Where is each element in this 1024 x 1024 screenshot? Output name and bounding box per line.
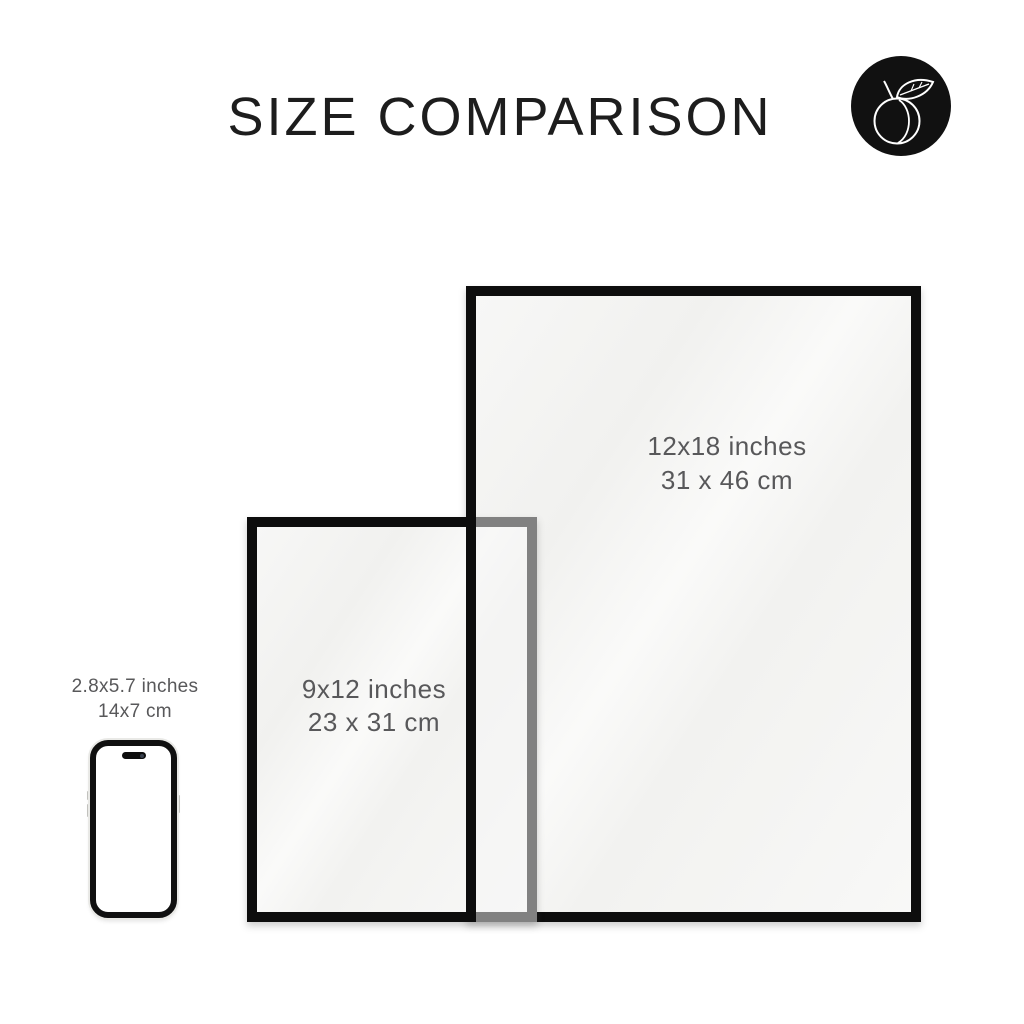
- size-comparison-infographic: SIZE COMPARISON 12x18 inches 31 x 46 cm …: [0, 0, 1024, 1024]
- phone-size-inches: 2.8x5.7 inches: [35, 674, 235, 699]
- peach-icon: [851, 56, 951, 156]
- brand-badge: [851, 56, 951, 156]
- camera-icon: [140, 754, 144, 758]
- small-frame-size-label: 9x12 inches 23 x 31 cm: [244, 673, 504, 739]
- large-frame-size-cm: 31 x 46 cm: [577, 463, 877, 497]
- page-title: SIZE COMPARISON: [227, 86, 772, 148]
- phone-size-label: 2.8x5.7 inches 14x7 cm: [35, 674, 235, 724]
- phone-power-button: [177, 795, 180, 813]
- phone: [90, 740, 177, 918]
- large-frame-left-border: [466, 286, 476, 922]
- large-frame-size-label: 12x18 inches 31 x 46 cm: [577, 429, 877, 497]
- small-frame-size-cm: 23 x 31 cm: [244, 706, 504, 739]
- phone-size-cm: 14x7 cm: [35, 699, 235, 724]
- large-frame-size-inches: 12x18 inches: [577, 429, 877, 463]
- small-frame-size-inches: 9x12 inches: [244, 673, 504, 706]
- dynamic-island: [122, 752, 146, 759]
